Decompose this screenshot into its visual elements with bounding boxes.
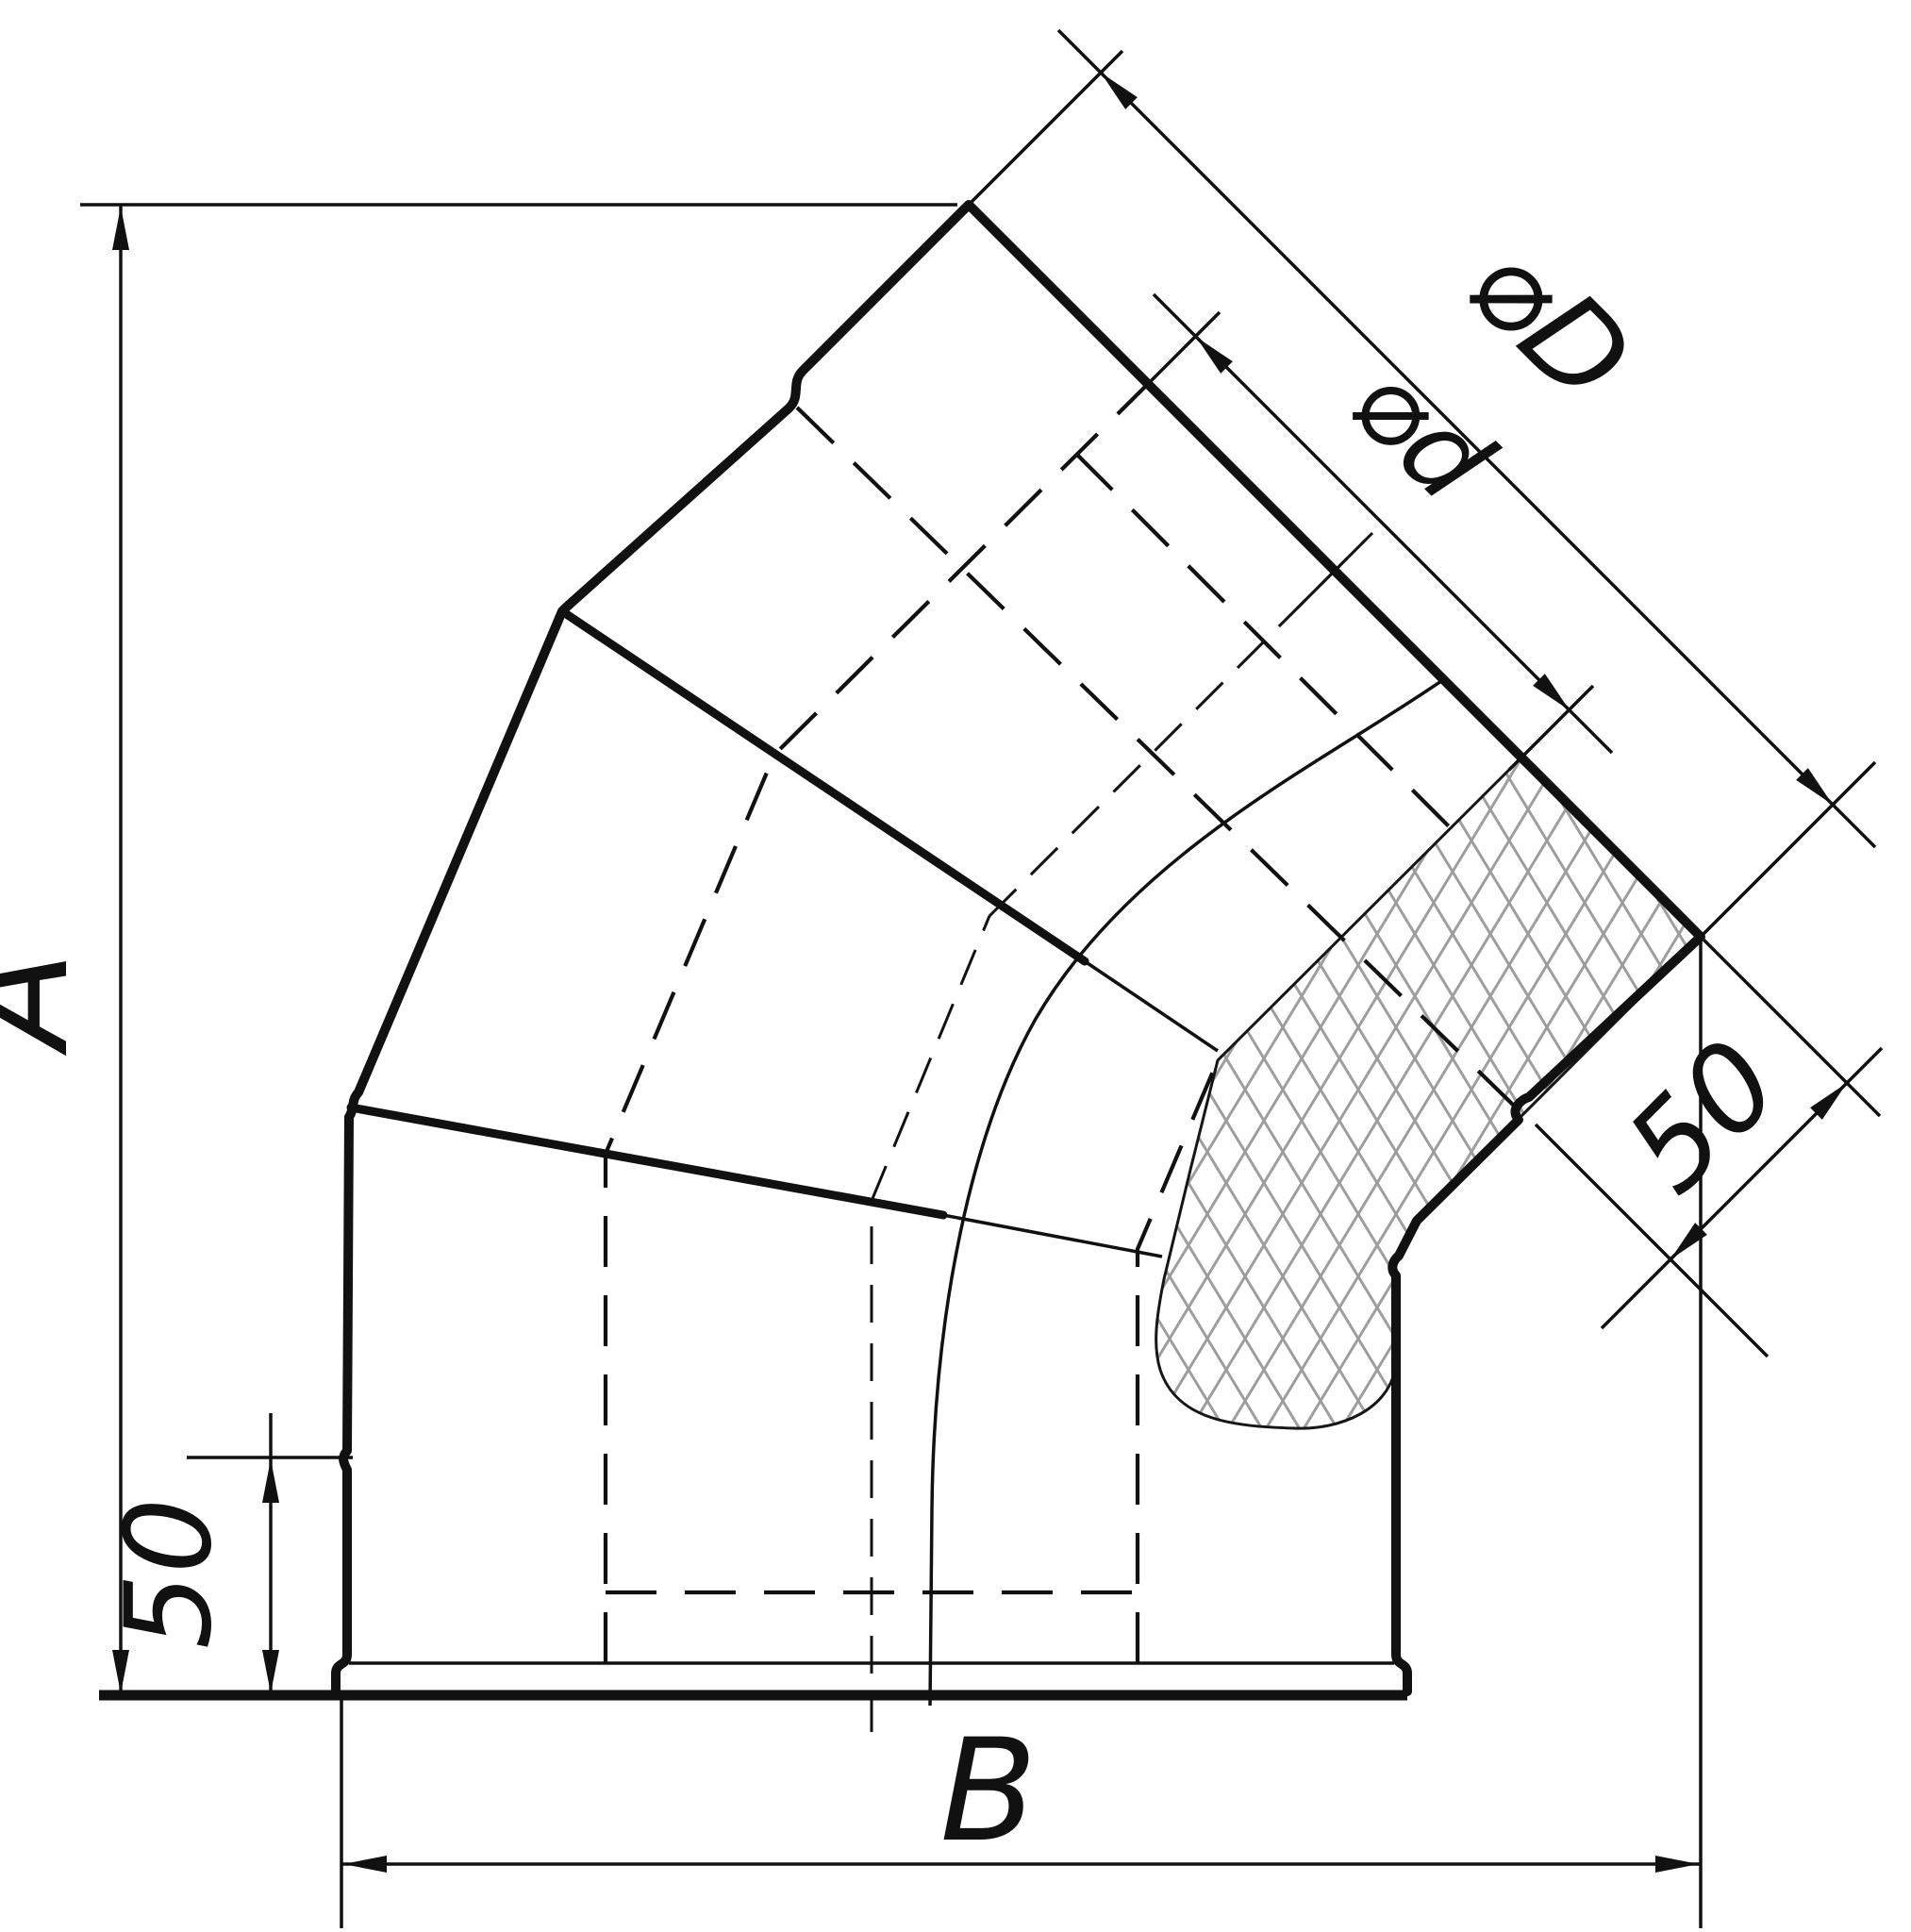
arrow-d-upper bbox=[1190, 331, 1233, 374]
arrow-50r-ne bbox=[1810, 1077, 1853, 1120]
label-dim-50-left: 50 bbox=[99, 1498, 238, 1649]
label-dim-50-right: 50 bbox=[1601, 1014, 1805, 1219]
arrow-dd-upper bbox=[1095, 67, 1138, 109]
ext-line-dd-left bbox=[969, 51, 1122, 205]
elbow-drawing-svg: A B 50 50 ⌀d ⌀D bbox=[0, 0, 1911, 1932]
arrow-dd-lower bbox=[1796, 768, 1838, 810]
arrow-a-bottom bbox=[112, 1650, 129, 1693]
ext-line-dd-right bbox=[1701, 762, 1875, 937]
arrow-a-top bbox=[112, 207, 129, 250]
arrow-b-right bbox=[1655, 1856, 1699, 1873]
arrow-50l-bottom bbox=[262, 1650, 279, 1693]
arrow-b-left bbox=[343, 1856, 387, 1873]
drawing-canvas: A B 50 50 ⌀d ⌀D bbox=[0, 0, 1911, 1932]
arrow-50l-top bbox=[262, 1459, 279, 1503]
ext-line-d-left bbox=[1136, 312, 1220, 396]
label-dim-a: A bbox=[0, 952, 100, 1057]
label-dim-b: B bbox=[940, 1709, 1038, 1874]
arrow-d-lower bbox=[1533, 674, 1575, 716]
ext-line-d-right bbox=[1509, 686, 1593, 770]
